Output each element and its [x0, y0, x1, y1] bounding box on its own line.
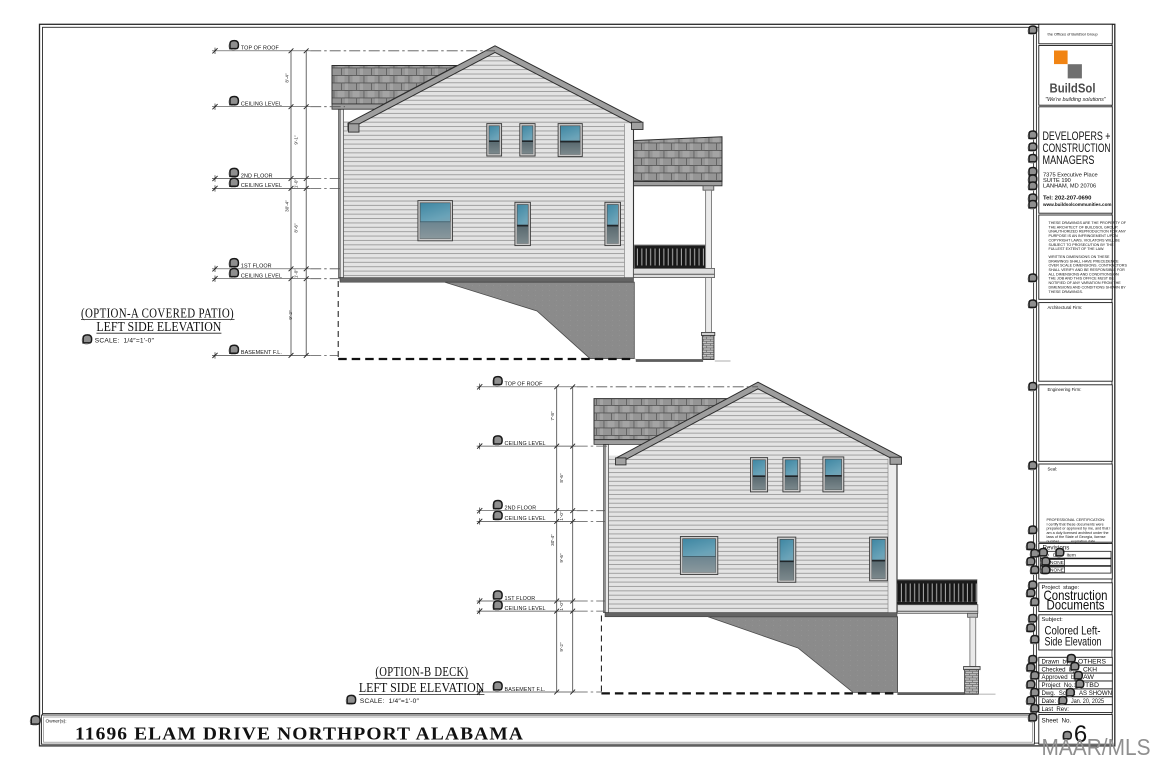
svg-text:Item: Item: [1067, 553, 1076, 559]
svg-text:30'-4″: 30'-4″: [550, 534, 555, 546]
svg-text:1'-0″: 1'-0″: [559, 601, 564, 611]
svg-text:AW: AW: [1083, 674, 1094, 681]
svg-text:LEFT SIDE ELEVATION: LEFT SIDE ELEVATION: [96, 319, 221, 334]
svg-text:Sheet No.: Sheet No.: [1042, 718, 1072, 725]
svg-text:BASEMENT F.L.: BASEMENT F.L.: [505, 687, 546, 693]
svg-text:9'-2″: 9'-2″: [559, 642, 564, 652]
svg-text:NONE: NONE: [1050, 560, 1064, 566]
svg-text:1'-0″: 1'-0″: [294, 179, 299, 189]
svg-text:7'-8″: 7'-8″: [550, 411, 555, 421]
svg-text:8'-6″: 8'-6″: [559, 473, 564, 483]
svg-text:CEILING LEVEL: CEILING LEVEL: [241, 274, 282, 280]
svg-text:9'-6″: 9'-6″: [559, 553, 564, 563]
svg-text:BuildSol: BuildSol: [1050, 81, 1096, 95]
svg-text:8'-6″: 8'-6″: [294, 223, 299, 233]
svg-text:MANAGERS: MANAGERS: [1043, 153, 1095, 167]
svg-text:Tel: 202-207-0690: Tel: 202-207-0690: [1043, 195, 1092, 201]
svg-text:Date:: Date:: [1042, 698, 1057, 705]
svg-text:NONE: NONE: [1050, 568, 1064, 574]
svg-text:(OPTION-B DECK): (OPTION-B DECK): [375, 664, 468, 679]
svg-text:11696 ELAM DRIVE NORTHPORT ALA: 11696 ELAM DRIVE NORTHPORT ALABAMA: [75, 724, 524, 744]
svg-text:Engineering Firm:: Engineering Firm:: [1048, 387, 1082, 392]
svg-text:Jan. 20, 2025: Jan. 20, 2025: [1071, 698, 1105, 705]
svg-text:CKH: CKH: [1083, 666, 1097, 673]
svg-text:8'-4″: 8'-4″: [285, 73, 290, 83]
svg-text:1ST FLOOR: 1ST FLOOR: [241, 264, 272, 270]
svg-text:1ST FLOOR: 1ST FLOOR: [505, 596, 536, 602]
svg-text:LEFT SIDE ELEVATION: LEFT SIDE ELEVATION: [359, 680, 485, 695]
svg-text:LANHAM, MD 20706: LANHAM, MD 20706: [1043, 184, 1096, 190]
svg-text:SCALE: 1/4″=1'-0″: SCALE: 1/4″=1'-0″: [360, 698, 420, 705]
svg-text:number: number: [1047, 540, 1060, 544]
svg-text:OTHERS: OTHERS: [1078, 658, 1106, 665]
svg-text:1'-0″: 1'-0″: [559, 511, 564, 521]
svg-text:expiration date: expiration date: [1071, 540, 1095, 544]
svg-text:Architectural Firm:: Architectural Firm:: [1048, 305, 1083, 310]
svg-text:1'-0″: 1'-0″: [294, 269, 299, 279]
svg-text:CEILING LEVEL: CEILING LEVEL: [505, 606, 546, 612]
svg-text:Seal:: Seal:: [1048, 466, 1058, 471]
svg-text:9'-2″: 9'-2″: [288, 310, 293, 320]
svg-text:CEILING LEVEL: CEILING LEVEL: [505, 516, 546, 522]
svg-text:Side Elevation: Side Elevation: [1045, 635, 1102, 648]
svg-text:the Offices of BuildSol Group: the Offices of BuildSol Group: [1048, 32, 1098, 37]
svg-text:9'-1″: 9'-1″: [294, 135, 299, 145]
svg-text:2ND FLOOR: 2ND FLOOR: [241, 173, 273, 179]
svg-text:Last Rev:: Last Rev:: [1042, 706, 1070, 713]
svg-text:SCALE: 1/4″=1'-0″: SCALE: 1/4″=1'-0″: [95, 338, 155, 345]
svg-text:TBD: TBD: [1085, 682, 1100, 689]
svg-text:FULLEST EXTENT OF THE LAW.: FULLEST EXTENT OF THE LAW.: [1049, 247, 1105, 251]
svg-text:2ND FLOOR: 2ND FLOOR: [505, 506, 537, 512]
svg-text:"We're building solutions": "We're building solutions": [1045, 97, 1107, 103]
svg-text:CEILING LEVEL: CEILING LEVEL: [241, 183, 282, 189]
svg-text:THESE DRAWINGS.: THESE DRAWINGS.: [1049, 290, 1084, 294]
svg-text:TOP OF ROOF: TOP OF ROOF: [241, 46, 280, 52]
svg-text:Documents: Documents: [1047, 597, 1105, 612]
svg-text:TOP OF ROOF: TOP OF ROOF: [505, 382, 544, 388]
svg-text:Subject:: Subject:: [1042, 617, 1064, 623]
svg-text:BASEMENT F.L.: BASEMENT F.L.: [241, 350, 282, 356]
svg-text:www.buildsolcommunities.com: www.buildsolcommunities.com: [1042, 202, 1112, 207]
svg-text:CEILING LEVEL: CEILING LEVEL: [505, 441, 546, 447]
svg-text:Owner(s):: Owner(s):: [46, 719, 67, 725]
svg-text:AS SHOWN: AS SHOWN: [1079, 690, 1112, 697]
svg-text:CEILING LEVEL: CEILING LEVEL: [241, 102, 282, 108]
svg-text:MAAR/MLS: MAAR/MLS: [1042, 734, 1151, 760]
svg-text:30'-4″: 30'-4″: [285, 200, 290, 212]
